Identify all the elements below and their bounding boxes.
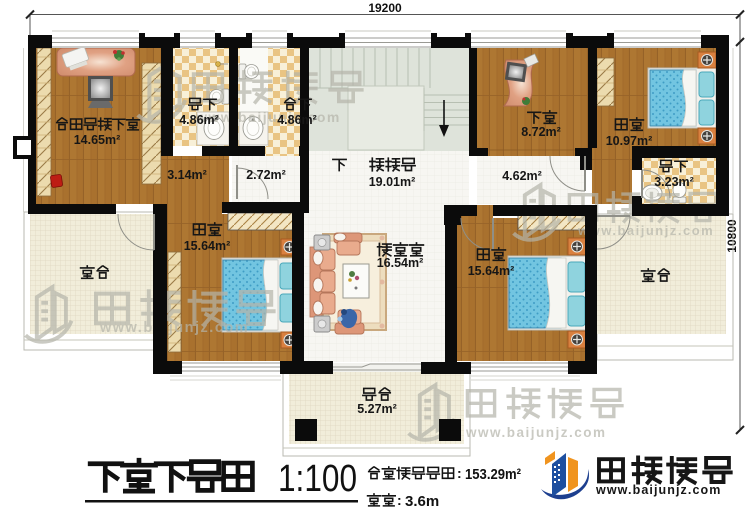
svg-text:153.29m²: 153.29m²: [465, 466, 521, 483]
svg-text:www.baijunjz.com: www.baijunjz.com: [99, 320, 249, 336]
svg-text:10.97m²: 10.97m²: [606, 134, 653, 148]
svg-text::: :: [397, 492, 402, 508]
svg-text:19200: 19200: [368, 1, 402, 15]
svg-text:www.baijunjz.com: www.baijunjz.com: [595, 483, 721, 497]
svg-text:www.baijunjz.com: www.baijunjz.com: [465, 425, 607, 440]
svg-text:10800: 10800: [725, 219, 739, 253]
svg-text:8.72m²: 8.72m²: [521, 125, 561, 139]
svg-text:3.23m²: 3.23m²: [654, 175, 694, 189]
svg-text:4.86m²: 4.86m²: [179, 113, 219, 127]
svg-text:2.72m²: 2.72m²: [246, 168, 286, 182]
svg-text:1:100: 1:100: [278, 458, 357, 500]
svg-text:4.86m²: 4.86m²: [277, 113, 317, 127]
svg-text:www.baijunjz.com: www.baijunjz.com: [577, 223, 714, 238]
svg-text:19.01m²: 19.01m²: [369, 175, 416, 189]
svg-text:3.6m: 3.6m: [405, 493, 439, 510]
svg-text::: :: [457, 465, 462, 481]
svg-text:14.65m²: 14.65m²: [74, 133, 121, 147]
svg-text:4.62m²: 4.62m²: [502, 169, 542, 183]
svg-text:15.64m²: 15.64m²: [468, 264, 515, 278]
svg-text:15.64m²: 15.64m²: [184, 239, 231, 253]
svg-text:16.54m²: 16.54m²: [377, 256, 424, 270]
svg-text:5.27m²: 5.27m²: [357, 402, 397, 416]
svg-text:3.14m²: 3.14m²: [167, 168, 207, 182]
